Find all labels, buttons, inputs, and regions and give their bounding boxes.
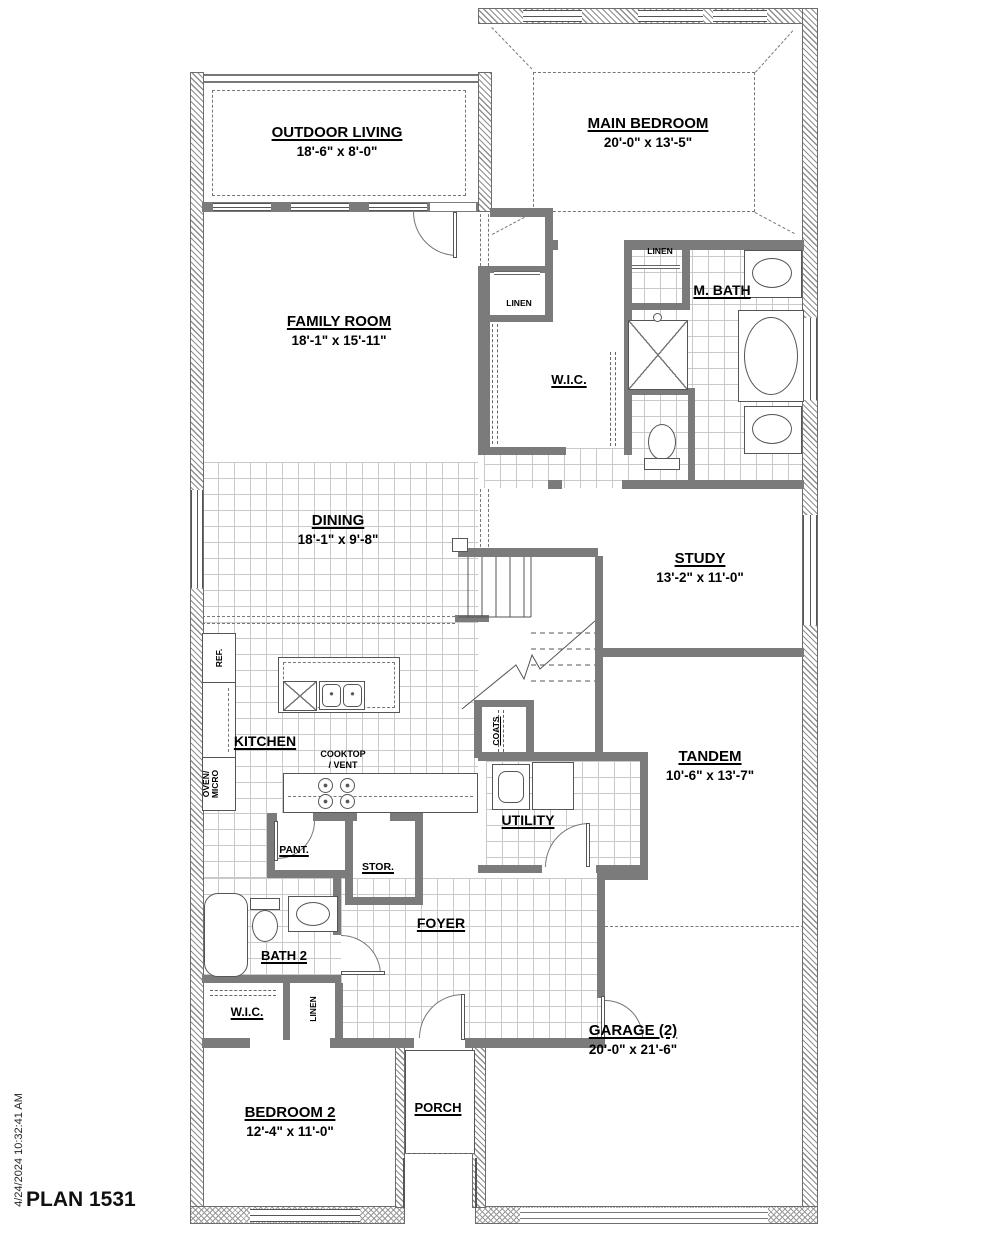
washer-drum [498,771,524,803]
family-hall-opening-dash [488,214,489,266]
label-coats: COATS [492,708,502,754]
closet-rod-icon [210,990,276,996]
tray-corner-line [491,27,532,69]
toilet-tank [644,458,680,470]
tray-corner-line [755,30,793,72]
cooktop-icon [340,794,355,809]
window-icon [213,203,271,211]
room-label-wic2: W.I.C. [206,1005,288,1019]
wall-segment [415,813,423,905]
wall-segment [484,315,553,322]
door-leaf [341,971,385,975]
cooktop-icon [318,778,333,793]
closet-rod-icon [492,324,498,444]
dining-landing-opening-dash [488,489,489,547]
cooktop-icon [318,794,333,809]
room-label-dining: DINING18'-1" x 9'-8" [218,512,458,548]
plan-title: PLAN 1531 [26,1188,136,1212]
garage-door-icon [520,1212,768,1219]
room-label-porch: PORCH [398,1100,478,1116]
closet-rod-icon [610,352,616,446]
room-label-pantry: PANT. [263,844,325,857]
room-label-linen-mbath: LINEN [632,246,688,256]
label-ref: REF. [215,638,225,678]
label-linen2: LINEN [309,986,319,1032]
window-icon [803,515,817,625]
cooktop-icon [340,778,355,793]
wall-segment [490,208,553,217]
door-leaf [453,212,457,258]
bathtub-icon [204,893,248,977]
shelf-icon [632,265,680,269]
label-cooktop-vent: COOKTOP/ VENT [303,749,383,771]
window-icon [191,490,203,588]
room-label-garage: GARAGE (2)20'-0" x 21'-6" [533,1022,733,1058]
wall-segment [345,897,423,905]
dining-ceiling-dash [202,623,455,624]
wall-segment [478,447,566,455]
wall-segment [267,870,353,878]
dishwasher-icon [283,681,317,711]
wall-segment [478,865,542,873]
wall-segment [526,700,534,758]
wall-segment [335,983,343,1040]
sink-icon [752,414,792,444]
window-icon [638,10,703,22]
exterior-wall-bedroom-divider [478,72,492,212]
room-label-kitchen: KITCHEN [215,733,315,750]
wall-segment [202,1038,250,1048]
room-label-foyer: FOYER [397,915,485,932]
floor-plan: OUTDOOR LIVING18'-6" x 8'-0" MAIN BEDROO… [0,0,1000,1250]
sink-basin [322,684,341,707]
toilet-tank [250,898,280,910]
shelf-icon [494,271,540,275]
wall-segment [688,395,695,480]
outdoor-living-beam [204,74,478,83]
room-label-outdoor-living: OUTDOOR LIVING18'-6" x 8'-0" [217,124,457,160]
bathtub-icon [744,317,798,395]
label-oven-micro: OVEN/MICRO [202,761,224,807]
door-leaf [586,823,590,867]
tray-corner-line [755,212,795,234]
room-label-wic-main: W.I.C. [519,372,619,388]
wall-segment [474,700,534,707]
cooktop-counter [283,773,478,813]
wall-segment [595,648,804,657]
counter-dash [288,796,473,797]
toilet-icon [252,910,278,942]
room-label-mbath: M. BATH [672,282,772,299]
door-opening [430,203,476,211]
room-label-storage: STOR. [347,861,409,874]
wall-segment [478,266,490,448]
door-leaf [461,994,465,1040]
window-icon [291,203,349,211]
toilet-icon [648,424,676,460]
window-icon [713,10,767,22]
wall-segment [597,872,605,998]
wall-segment [624,303,690,310]
room-label-bath2: BATH 2 [234,948,334,964]
door-icon [413,212,457,256]
room-label-tandem: TANDEM10'-6" x 13'-7" [610,748,810,784]
room-label-bedroom2: BEDROOM 212'-4" x 11'-0" [190,1104,390,1140]
room-label-study: STUDY13'-2" x 11'-0" [600,550,800,586]
print-timestamp: 4/24/2024 10:32:41 AM [13,1040,27,1250]
window-icon [250,1209,360,1222]
shower-head-icon [653,313,662,322]
wall-segment [474,700,482,758]
wall-segment [548,480,562,489]
window-icon [369,203,427,211]
walkway-line [475,1158,477,1208]
room-label-main-bedroom: MAIN BEDROOM20'-0" x 13'-5" [528,115,768,151]
wall-segment [405,1038,414,1048]
tandem-garage-dash [605,926,804,927]
wall-segment [345,813,353,905]
room-label-linen-hall: LINEN [491,298,547,308]
wall-segment [458,548,598,557]
sink-icon [296,902,330,926]
dining-ceiling-dash [202,616,455,617]
dryer-icon [532,762,574,810]
window-icon [803,318,817,400]
shower-icon [628,320,688,390]
walkway-line [403,1158,405,1208]
family-hall-opening-dash [480,214,481,266]
room-label-family-room: FAMILY ROOM18'-1" x 15'-11" [219,313,459,349]
window-icon [523,10,582,22]
wall-segment [465,1038,478,1048]
porch-edge-dash [405,1153,475,1154]
sink-basin [343,684,362,707]
room-label-utility: UTILITY [482,812,574,829]
wall-segment [622,480,804,489]
bath2-hall-tile-floor [202,813,267,878]
dining-landing-opening-dash [480,489,481,547]
